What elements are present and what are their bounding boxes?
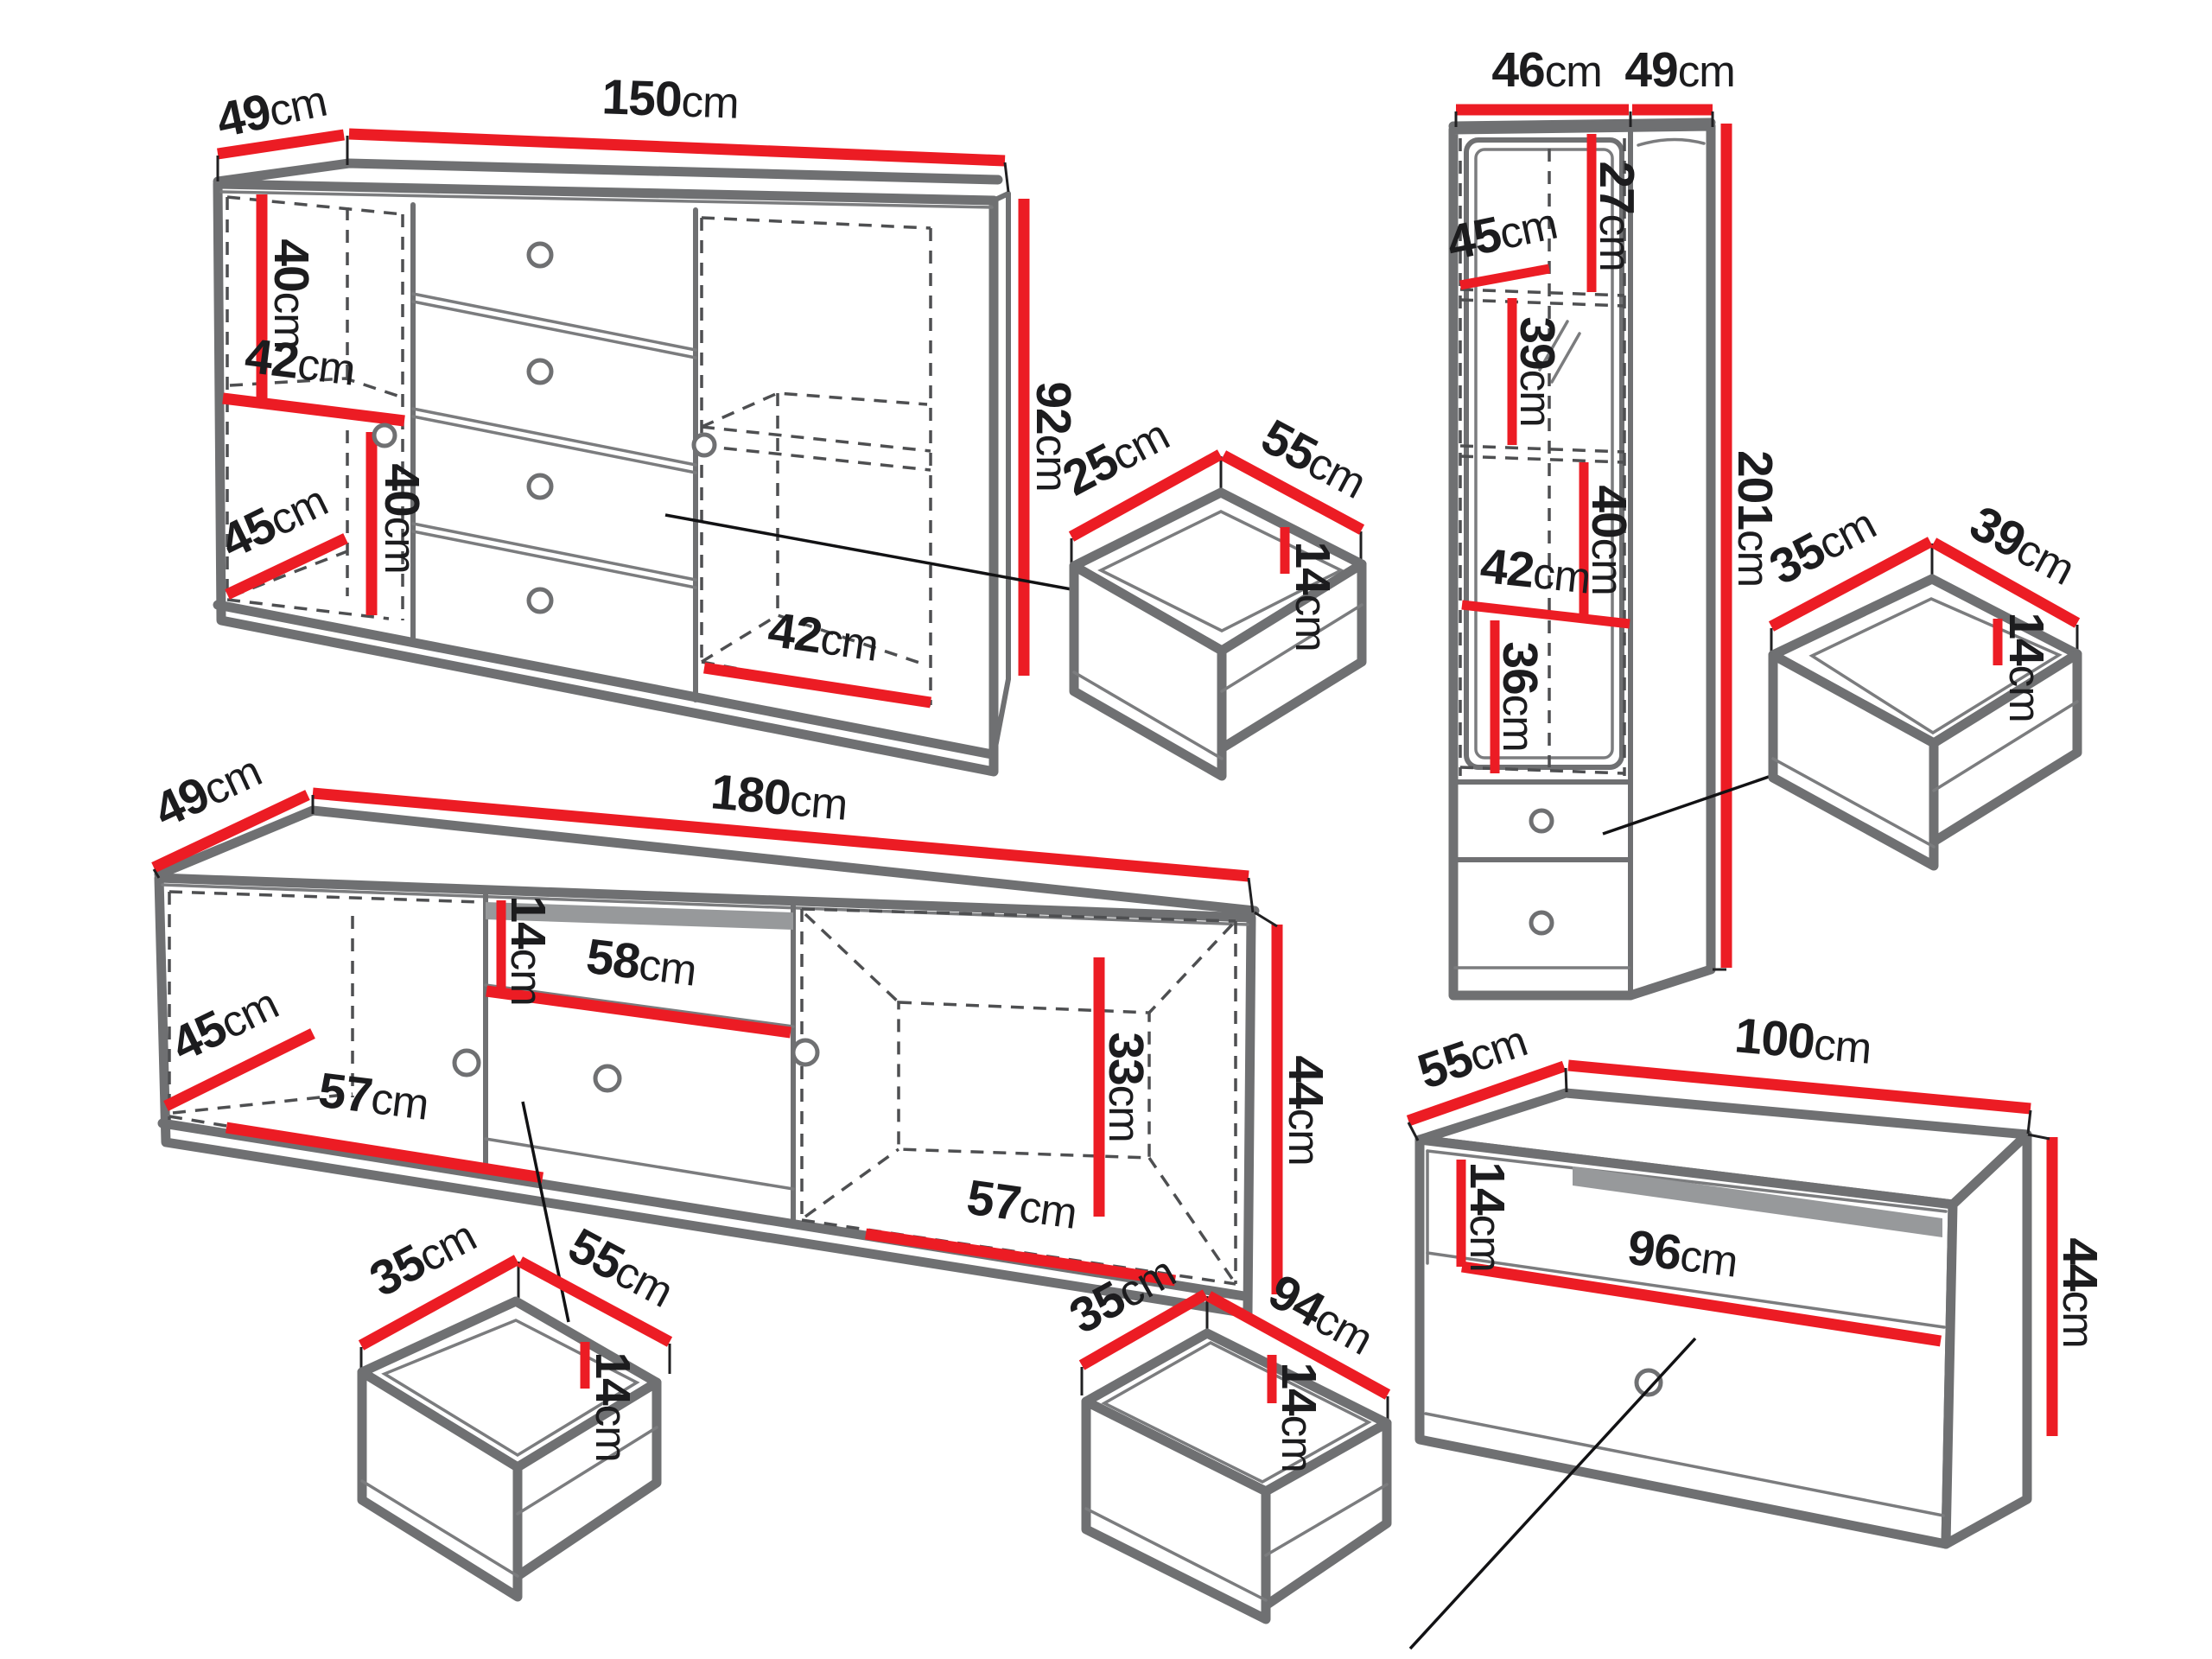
- value: 96: [1624, 1220, 1684, 1281]
- value: 33: [1098, 1032, 1154, 1084]
- tall-cabinet-bottom-section-label: 36cm: [1492, 641, 1548, 751]
- value: 39: [1510, 316, 1565, 369]
- unit: cm: [1677, 1230, 1739, 1287]
- value: 150: [601, 69, 683, 127]
- sideboard: 49cm 150cm 92cm 40cm 42cm 40cm 45cm 42cm: [212, 69, 1081, 772]
- sideboard-right-door-knob-icon: [694, 435, 715, 455]
- unit: cm: [502, 949, 551, 1006]
- value: 201: [1727, 450, 1783, 530]
- sideboard-width-label: 150cm: [601, 69, 740, 129]
- low-cabinet-side-face: [1946, 1135, 2027, 1544]
- drawer-height-label: 14cm: [1999, 612, 2054, 721]
- tall-cabinet-front-width-label: 46cm: [1491, 42, 1601, 98]
- drawer-knob-icon: [529, 589, 551, 612]
- value: 49: [1624, 42, 1677, 98]
- tv-stand-width-label: 180cm: [709, 764, 849, 831]
- tv-stand-right-door-knob-icon: [793, 1040, 817, 1065]
- drawer-width-label: 94cm: [1260, 1264, 1382, 1366]
- value: 44: [1278, 1055, 1333, 1109]
- unit: cm: [1531, 548, 1593, 603]
- drawer-height-label: 14cm: [1271, 1362, 1326, 1471]
- value: 57: [315, 1063, 375, 1124]
- tall-cabinet-top-slab: [1453, 123, 1711, 126]
- value: 14: [1271, 1362, 1326, 1416]
- unit: cm: [1100, 1085, 1149, 1142]
- unit: cm: [295, 339, 357, 395]
- drawer-knob-icon: [1531, 810, 1552, 831]
- unit: cm: [1016, 1181, 1079, 1238]
- unit: cm: [1545, 47, 1602, 96]
- drawer-height-label: 14cm: [1285, 541, 1340, 651]
- drawer-knob-icon: [529, 475, 551, 498]
- sideboard-width-line: [349, 134, 1005, 161]
- drawer-knob-icon: [529, 360, 551, 383]
- sideboard-lower-height-label: 40cm: [374, 463, 429, 573]
- unit: cm: [636, 939, 698, 995]
- tv-stand-height-label: 44cm: [1278, 1055, 1333, 1165]
- sideboard-left-door-knob-icon: [374, 425, 395, 446]
- diagram-canvas: 49cm 150cm 92cm 40cm 42cm 40cm 45cm 42cm…: [0, 0, 2212, 1659]
- value: 14: [500, 895, 556, 950]
- value: 14: [585, 1351, 640, 1406]
- value: 46: [1491, 42, 1544, 98]
- tv-stand-niche-height-label: 14cm: [500, 895, 556, 1005]
- unit: cm: [264, 76, 330, 136]
- unit: cm: [1494, 695, 1543, 752]
- unit: cm: [1461, 1215, 1510, 1272]
- value: 42: [242, 328, 302, 390]
- unit: cm: [1280, 1109, 1329, 1166]
- value: 40: [264, 238, 319, 291]
- tall-cabinet-middle-section-label: 39cm: [1510, 316, 1565, 426]
- unit: cm: [1273, 1415, 1322, 1472]
- value: 57: [963, 1170, 1024, 1232]
- drawer-width-label: 55cm: [560, 1217, 683, 1318]
- value: 44: [2052, 1237, 2107, 1292]
- low-cabinet: 55cm 100cm 44cm 14cm 96cm: [1408, 1007, 2107, 1649]
- unit: cm: [1511, 370, 1560, 427]
- value: 92: [1026, 381, 1081, 434]
- unit: cm: [1287, 594, 1336, 652]
- tall-cabinet: 46cm 49cm 201cm 27cm 45cm 39cm 40cm 42cm…: [1442, 42, 1821, 995]
- unit: cm: [788, 775, 849, 829]
- drawer-width-label: 39cm: [1961, 495, 2085, 595]
- value: 42: [1478, 538, 1536, 599]
- value: 36: [1492, 641, 1548, 694]
- tv-stand-drawer-knob-icon: [595, 1066, 620, 1090]
- unit: cm: [2054, 1291, 2103, 1348]
- unit: cm: [587, 1405, 636, 1462]
- value: 42: [765, 602, 825, 664]
- drawer-knob-icon: [529, 244, 551, 266]
- drawer-width-label: 55cm: [1253, 409, 1376, 509]
- tv-stand-drawer-inset: 35cm 55cm 14cm: [361, 1207, 683, 1597]
- unit: cm: [376, 517, 425, 574]
- drawer-knob-icon: [1531, 912, 1552, 933]
- value: 14: [1999, 612, 2054, 666]
- furniture-dimension-diagram: 49cm 150cm 92cm 40cm 42cm 40cm 45cm 42cm…: [0, 0, 2212, 1659]
- value: 14: [1285, 541, 1340, 595]
- unit: cm: [1591, 214, 1640, 271]
- tv-stand-right-height-label: 33cm: [1098, 1032, 1154, 1141]
- wide-drawer-inset: 35cm 94cm 14cm: [1061, 1243, 1388, 1619]
- value: 180: [709, 764, 792, 826]
- value: 40: [374, 463, 429, 516]
- low-cabinet-width-label: 100cm: [1732, 1007, 1873, 1075]
- low-cabinet-niche-height-label: 14cm: [1459, 1161, 1515, 1271]
- unit: cm: [2000, 665, 2050, 722]
- tall-cabinet-top-section-label: 27cm: [1589, 161, 1644, 270]
- value: 14: [1459, 1161, 1515, 1216]
- drawer-height-label: 14cm: [585, 1351, 640, 1461]
- unit: cm: [681, 76, 740, 127]
- low-cabinet-height-label: 44cm: [2052, 1237, 2107, 1347]
- unit: cm: [1812, 1019, 1873, 1073]
- value: 58: [583, 929, 643, 990]
- tall-cabinet-side-depth-label: 49cm: [1624, 42, 1734, 98]
- sideboard-drawer-inset: 25cm 55cm 14cm: [1054, 406, 1376, 776]
- unit: cm: [817, 613, 880, 671]
- tv-stand-left-door-knob-icon: [454, 1051, 479, 1075]
- unit: cm: [368, 1073, 430, 1129]
- value: 27: [1589, 161, 1644, 213]
- tv-stand: 49cm 180cm 44cm 45cm 57cm 14cm 58cm 33cm…: [146, 742, 1333, 1322]
- sideboard-top-slab: [218, 163, 998, 181]
- value: 40: [1581, 485, 1637, 537]
- value: 100: [1732, 1007, 1816, 1070]
- unit: cm: [1678, 47, 1735, 96]
- tall-cabinet-drawer-inset: 35cm 39cm 14cm: [1761, 495, 2084, 866]
